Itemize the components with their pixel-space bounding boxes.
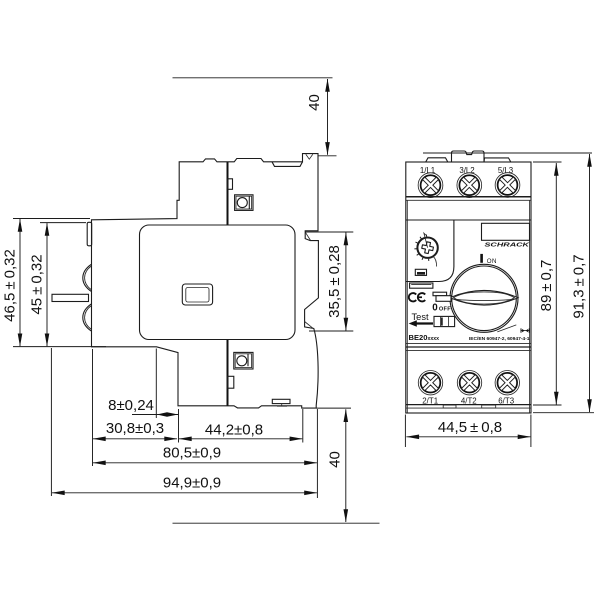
svg-text:91,3 ± 0,7: 91,3 ± 0,7: [571, 254, 588, 318]
svg-text:0: 0: [432, 303, 438, 314]
svg-text:ON: ON: [487, 258, 497, 265]
svg-text:44,5 ± 0,8: 44,5 ± 0,8: [438, 419, 502, 436]
svg-text:40: 40: [306, 94, 323, 111]
svg-text:OFF: OFF: [439, 306, 451, 312]
svg-text:80,5±0,9: 80,5±0,9: [163, 444, 221, 461]
svg-text:94,9±0,9: 94,9±0,9: [163, 474, 221, 491]
svg-text:44,2±0,8: 44,2±0,8: [205, 421, 263, 438]
svg-text:30,8±0,3: 30,8±0,3: [106, 420, 164, 437]
svg-text:8±0,24: 8±0,24: [108, 397, 154, 414]
svg-text:35,5 ± 0,28: 35,5 ± 0,28: [326, 245, 343, 318]
svg-text:45 ± 0,32: 45 ± 0,32: [28, 254, 45, 314]
svg-text:IEC/EN 60947-2, 60947-4-1: IEC/EN 60947-2, 60947-4-1: [469, 336, 530, 342]
svg-text:40: 40: [326, 451, 343, 468]
svg-text:89 ± 0,7: 89 ± 0,7: [538, 260, 555, 312]
svg-text:Test: Test: [412, 312, 429, 322]
svg-text:SCHRACK: SCHRACK: [485, 242, 531, 248]
svg-text:46,5 ± 0,32: 46,5 ± 0,32: [1, 249, 18, 322]
